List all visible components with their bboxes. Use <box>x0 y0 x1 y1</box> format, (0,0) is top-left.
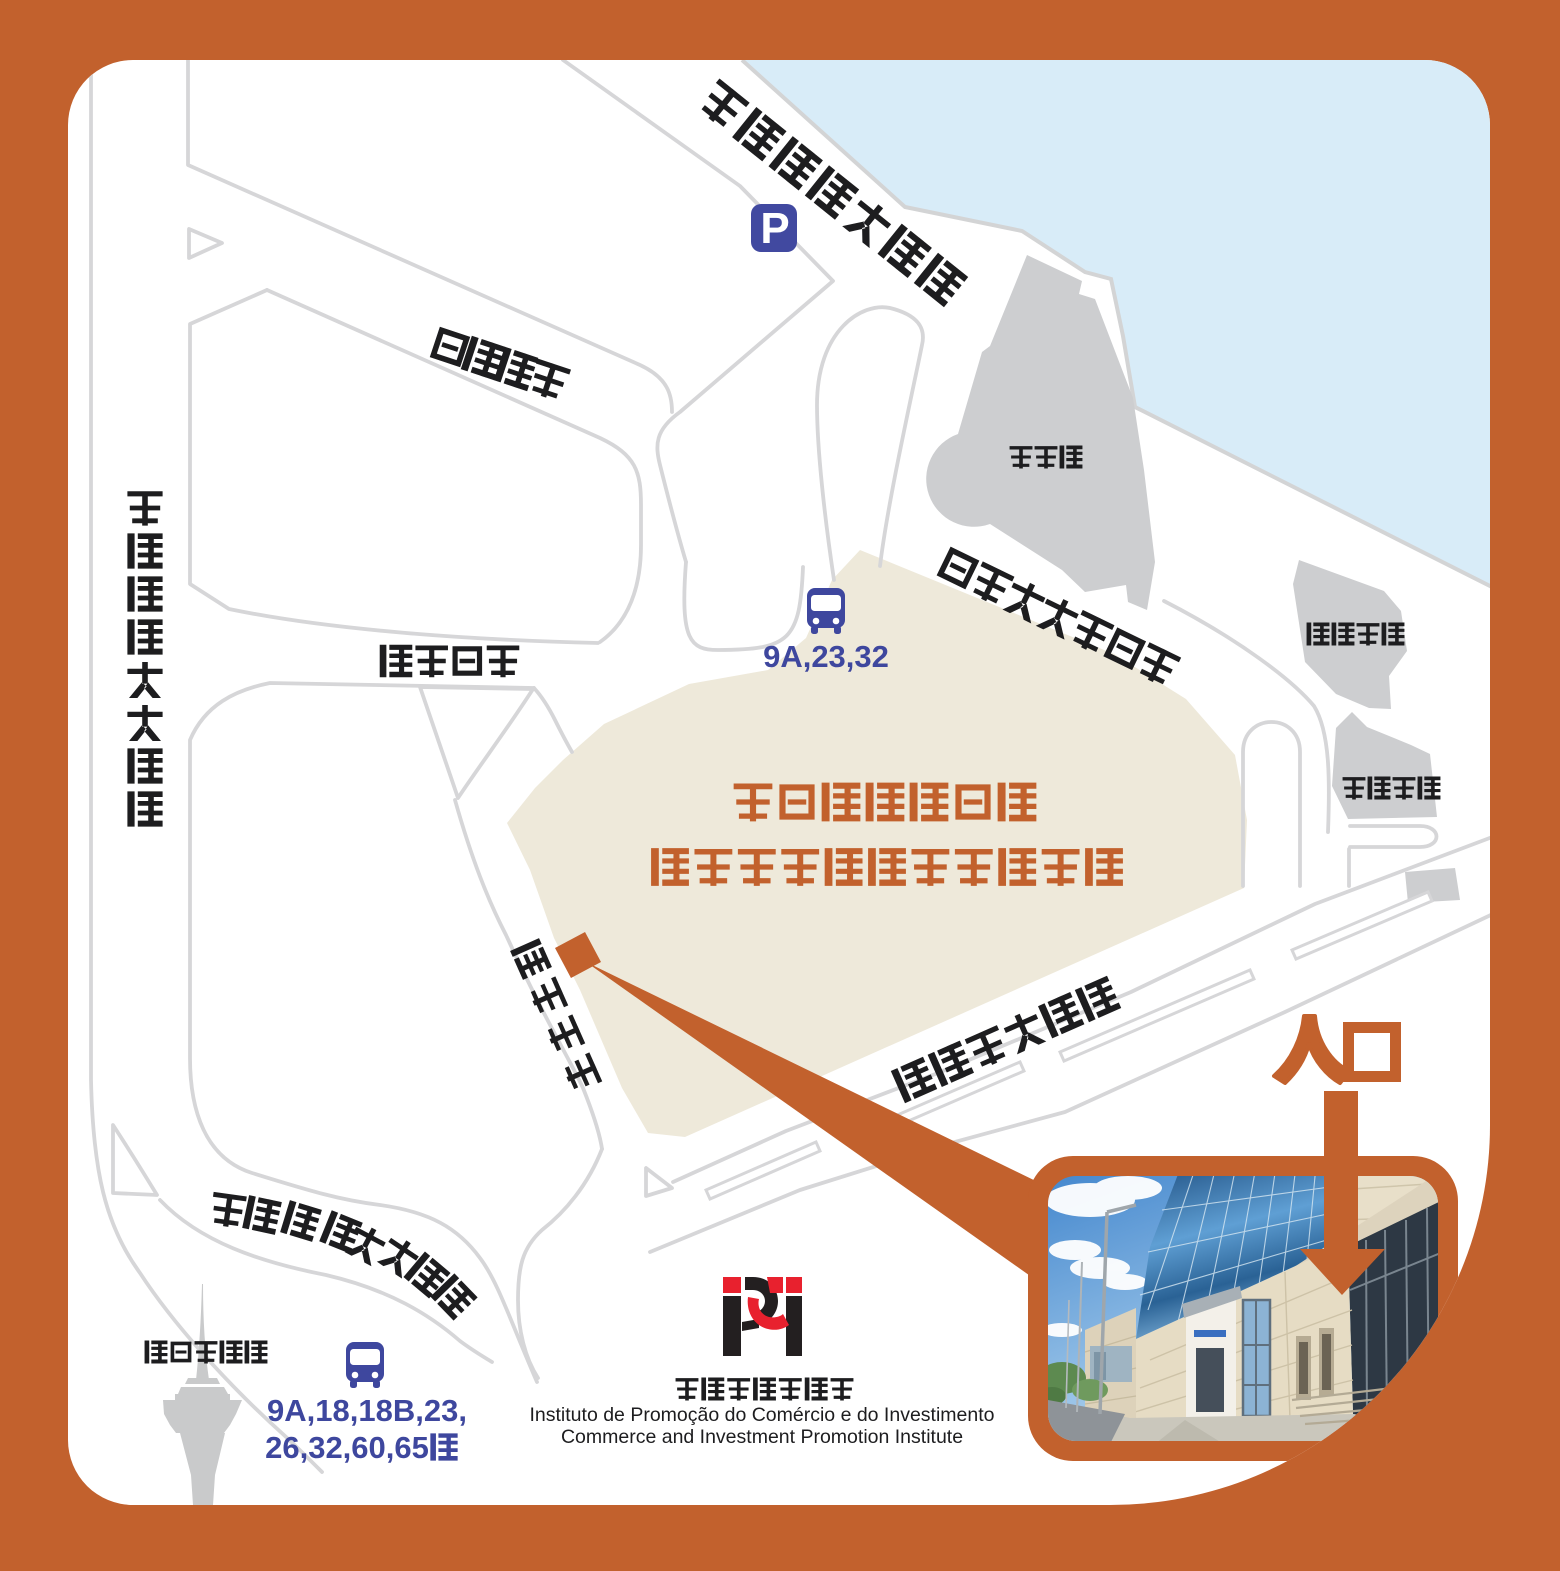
svg-text:9A,23,32: 9A,23,32 <box>763 639 889 674</box>
svg-text:P: P <box>760 204 789 253</box>
svg-text:Commerce and Investment Promot: Commerce and Investment Promotion Instit… <box>561 1426 963 1448</box>
svg-text:9A,18,18B,23,: 9A,18,18B,23, <box>267 1393 467 1428</box>
svg-text:Instituto de Promoção do Comér: Instituto de Promoção do Comércio e do I… <box>530 1404 995 1426</box>
svg-text:26,32,60,65: 26,32,60,65 <box>265 1430 429 1465</box>
